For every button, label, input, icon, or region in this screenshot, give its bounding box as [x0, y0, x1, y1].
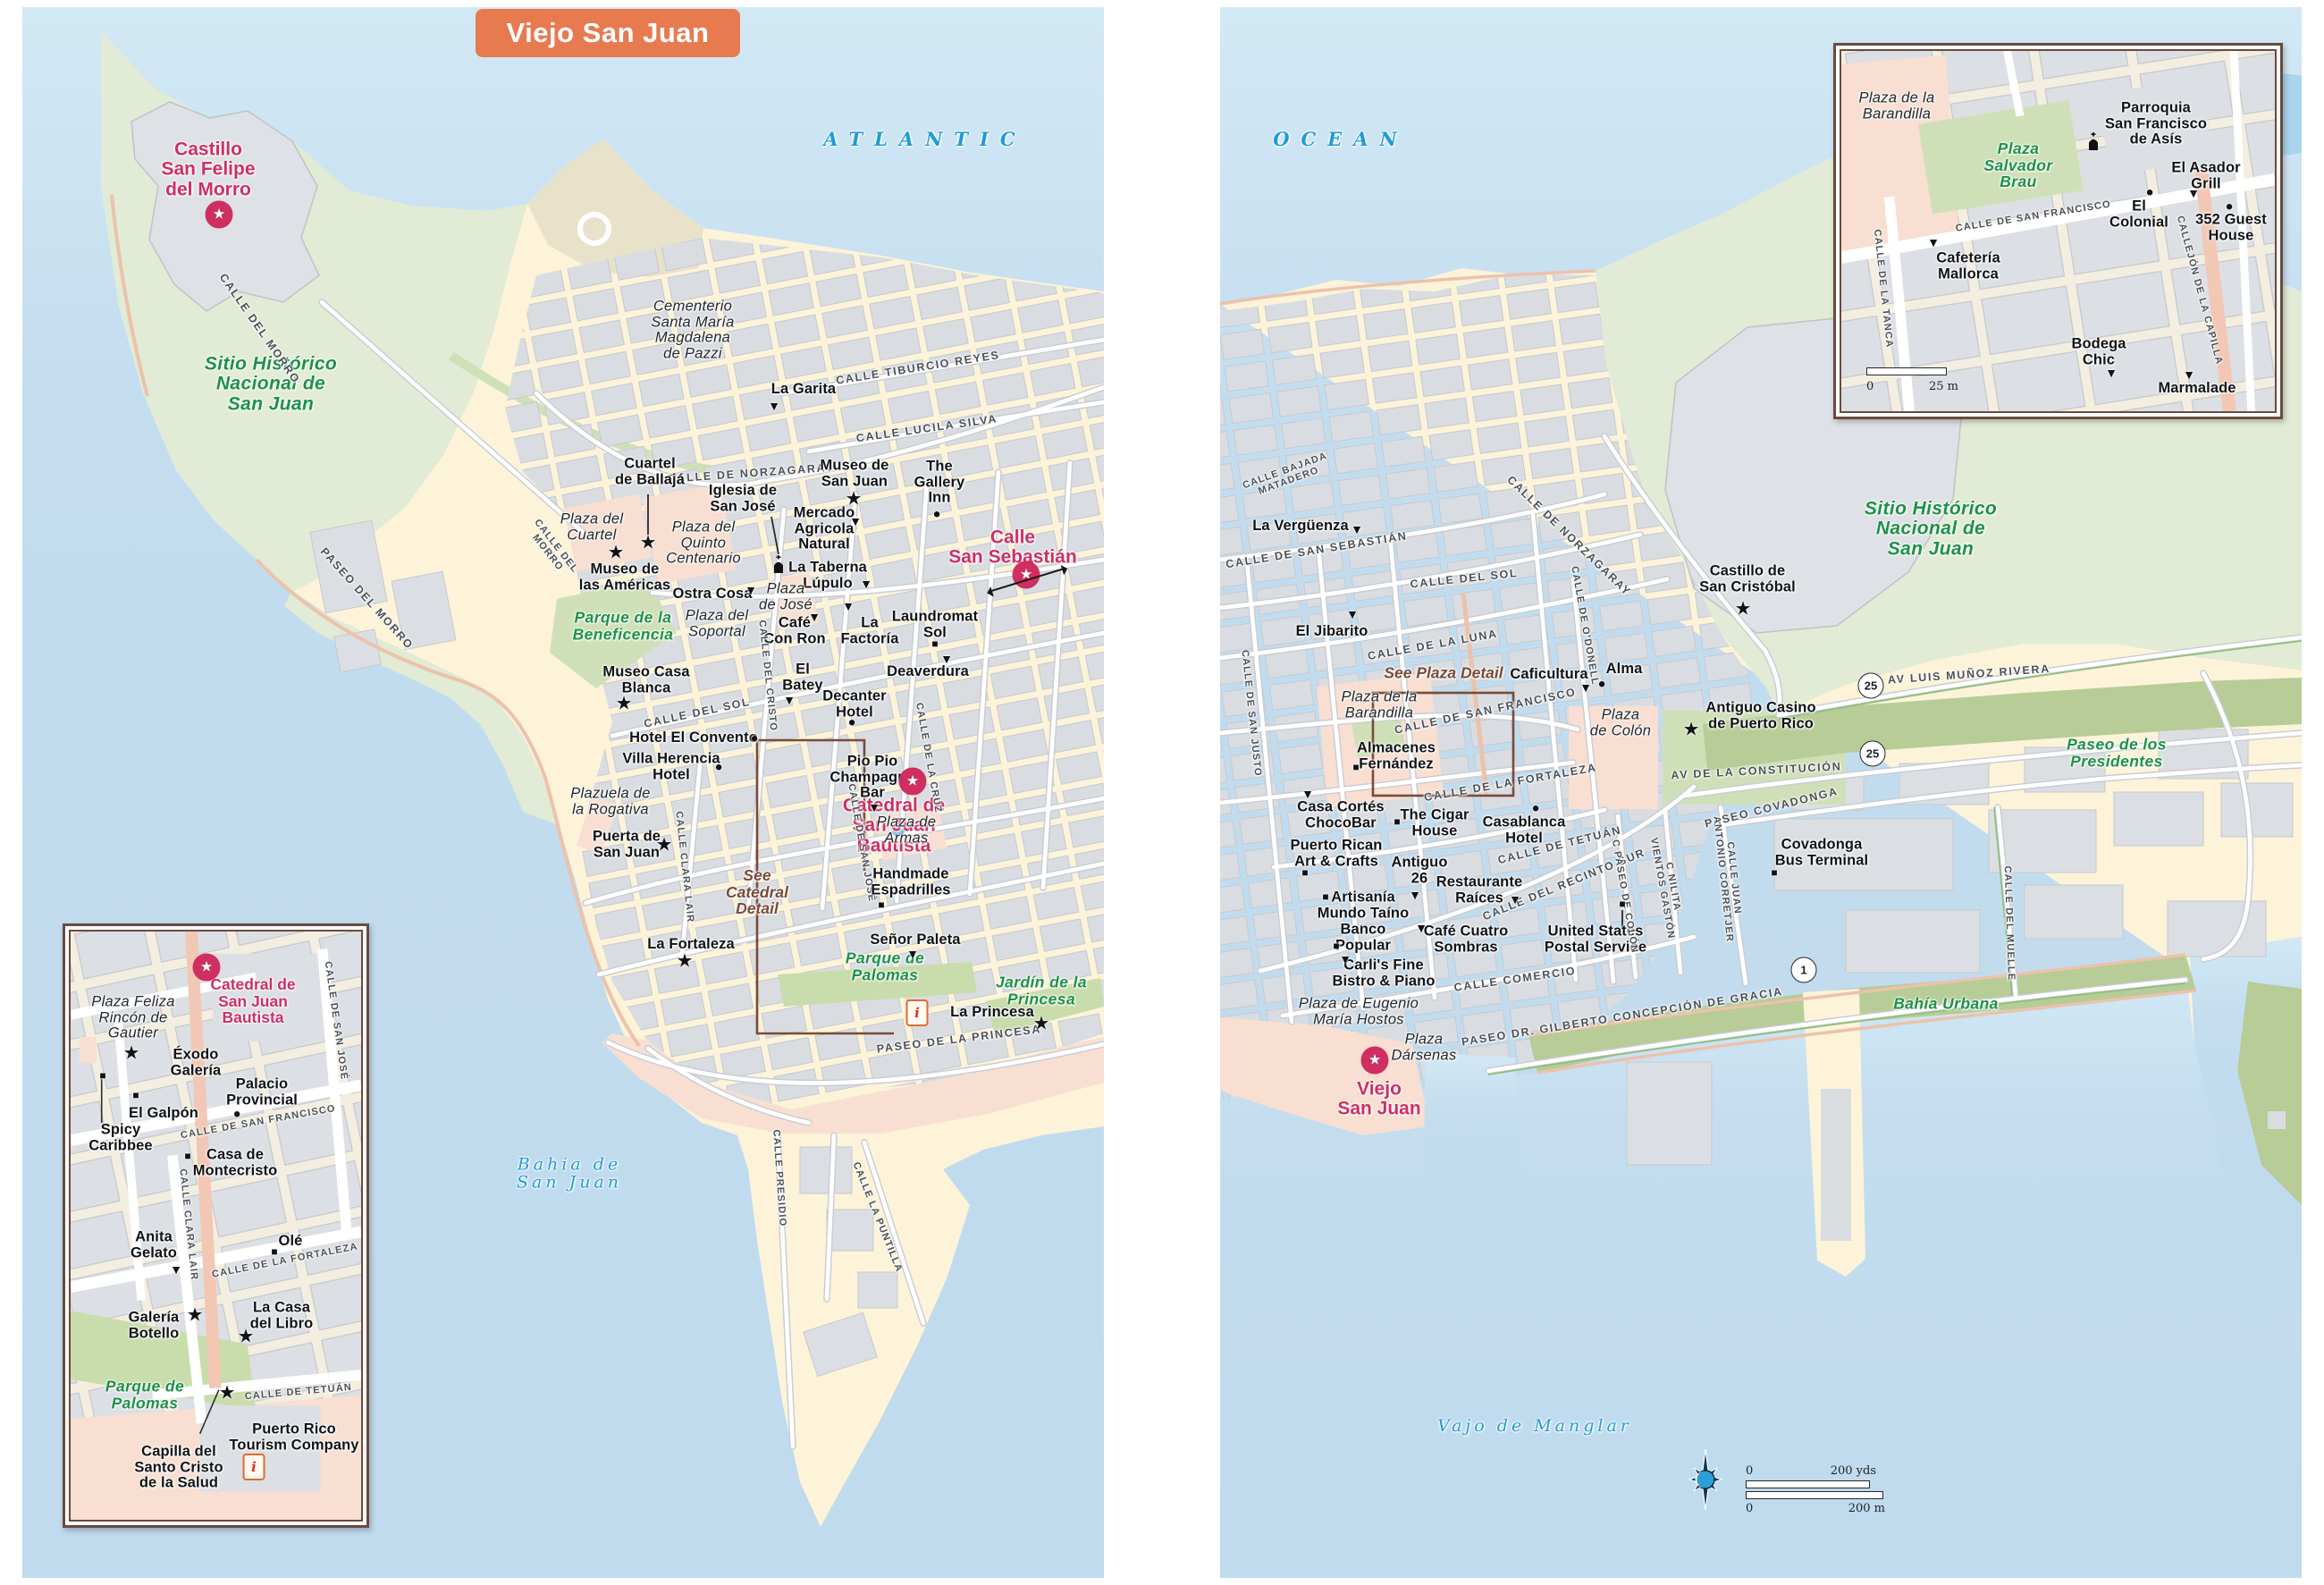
poi-square-icon: ■: [271, 1246, 277, 1257]
inset-catedral-detail: Plaza FelizaRincón deGautierCatedral deS…: [63, 923, 369, 1528]
poi-square-icon: ■: [99, 1070, 105, 1081]
inset-scale-zero: 0: [1866, 380, 1874, 393]
map-label-xodo-galer-a: ÉxodoGalería: [171, 1047, 222, 1078]
poi-dot-icon: ●: [2225, 200, 2233, 214]
poi-star-icon: ★: [123, 1044, 140, 1063]
map-label-av-luis-mu-oz-rivera: AV LUIS MUÑOZ RIVERA: [1888, 663, 2051, 687]
poi-square-icon: ■: [1301, 867, 1308, 878]
poi-square-icon: ■: [931, 638, 938, 649]
map-label-calle-del-muelle: CALLE DEL MUELLE: [2001, 865, 2016, 981]
scale-zero-top: 0: [1746, 1464, 1753, 1478]
poi-star-icon: ★: [219, 1384, 236, 1403]
poi-dot-icon: ●: [847, 716, 855, 729]
poi-triangle-icon: ▼: [768, 400, 780, 412]
poi-triangle-icon: ▼: [1346, 608, 1359, 620]
map-label-artisan-a-mundo-ta-no: ArtisaníaMundo Taíno: [1318, 889, 1410, 921]
poi-square-icon: ■: [1322, 891, 1328, 902]
scale-bar-yds: [1746, 1480, 1870, 1488]
map-label-calle-comercio: CALLE COMERCIO: [1453, 965, 1577, 994]
poi-triangle-icon: ▼: [842, 600, 855, 612]
map-label-calle-de-san-francisco: CALLE DE SAN FRANCISCO: [1955, 199, 2112, 234]
map-label-deaverdura: Deaverdura: [887, 664, 969, 680]
map-label-el-galp-n: El Galpón: [129, 1106, 198, 1122]
poi-triangle-icon: ▼: [1509, 893, 1521, 906]
map-label-calle-de-san-francisco: CALLE DE SAN FRANCISCO: [180, 1104, 336, 1142]
route-shield-25: 25: [1858, 673, 1884, 699]
map-label-calle-lucila-silva: CALLE LUCILA SILVA: [855, 413, 998, 444]
map-label-castillo-san-felipe-del-morro: CastilloSan Felipedel Morro: [161, 139, 255, 199]
poi-triangle-icon: ▼: [783, 694, 796, 706]
scale-m: 200 m: [1848, 1502, 1885, 1515]
poi-dot-icon: ●: [750, 732, 758, 746]
poi-dot-icon: ●: [1597, 678, 1605, 691]
map-label-sitio-hist-rico-nacional-de-san-ju: Sitio HistóricoNacional deSan Juan: [205, 354, 337, 414]
map-label-the-gallery-inn: TheGalleryInn: [914, 459, 965, 507]
map-label-calle-de-tetu-n: CALLE DE TETUÁN: [244, 1383, 352, 1403]
map-label-plaza-del-soportal: Plaza delSoportal: [686, 608, 749, 639]
map-label-museo-de-san-juan: Museo deSan Juan: [821, 458, 889, 489]
map-label-c-nilita-vientos-gast-n: C NILITAVIENTOS GASTÓN: [1647, 835, 1686, 940]
map-label-calle-de-san-sebasti-n: CALLE DE SAN SEBASTIÁN: [1225, 530, 1408, 570]
map-label-alma: Alma: [1606, 662, 1643, 678]
map-label-museo-de-las-am-ricas: Museo delas Américas: [579, 561, 670, 593]
map-label-bahia-de-san-juan: Bahia deSan Juan: [517, 1156, 622, 1193]
map-label-paseo-de-los-presidentes: Paseo de losPresidentes: [2067, 736, 2167, 769]
map-label-parroquia-san-francisco-de-as-s: ParroquiaSan Franciscode Asís: [2105, 101, 2207, 148]
map-label-calle-de-san-jos: CALLE DE SAN JOSÉ: [322, 961, 349, 1081]
poi-square-icon: ■: [878, 899, 884, 910]
poi-square-icon: ■: [1333, 940, 1339, 951]
map-label-calle-clara-lair: CALLE CLARA LAIR: [673, 811, 695, 923]
scale-zero-bottom: 0: [1746, 1502, 1753, 1515]
poi-star-icon: ★: [656, 836, 673, 855]
poi-triangle-icon: ▼: [860, 578, 872, 590]
map-label-ol: Olé: [279, 1234, 303, 1250]
map-label-la-factor-a: LaFactoría: [841, 615, 899, 646]
map-label-catedral-de-san-juan-bautista: Catedral deSan JuanBautista: [210, 976, 295, 1026]
map-label-sitio-hist-rico-nacional-de-san-ju: Sitio HistóricoNacional deSan Juan: [1865, 499, 1997, 559]
highlight-star-icon: ★: [206, 201, 233, 229]
church-icon: [2087, 132, 2101, 154]
map-label-la-verg-enza: La Vergüenza: [1252, 518, 1349, 535]
map-label-352-guest-house: 352 GuestHouse: [2195, 212, 2267, 243]
map-label-calle-tiburcio-reyes: CALLE TIBURCIO REYES: [835, 350, 1000, 387]
poi-square-icon: ■: [184, 1151, 190, 1161]
poi-triangle-icon: ▼: [808, 611, 821, 623]
map-label-castillo-de-san-crist-bal: Castillo deSan Cristóbal: [1699, 563, 1796, 594]
poi-star-icon: ★: [640, 534, 657, 552]
poi-star-icon: ★: [1033, 1015, 1050, 1033]
map-label-marmalade: Marmalade: [2158, 381, 2236, 397]
scale-yds: 200 yds: [1831, 1464, 1876, 1478]
map-label-plaza-de-eugenio-mar-a-hostos: Plaza de EugenioMaría Hostos: [1299, 996, 1419, 1027]
map-label-galer-a-botello: GaleríaBotello: [129, 1310, 180, 1341]
poi-dot-icon: ●: [232, 1108, 240, 1121]
poi-triangle-icon: ▼: [1351, 523, 1363, 535]
poi-triangle-icon: ▼: [745, 584, 757, 596]
map-label-antiguo-casino-de-puerto-rico: Antiguo Casinode Puerto Rico: [1705, 700, 1815, 731]
map-label-palacio-provincial: PalacioProvincial: [226, 1076, 298, 1108]
map-scale-bar: 0 200 yds 0 200 m: [1746, 1464, 1889, 1520]
scale-bar-m: [1746, 1491, 1883, 1499]
map-label-av-de-la-constituci-n: AV DE LA CONSTITUCIÓN: [1671, 761, 1842, 781]
poi-dot-icon: ●: [2145, 186, 2153, 199]
poi-dot-icon: ●: [932, 508, 940, 521]
map-label-calle-de-san-justo: CALLE DE SAN JUSTO: [1239, 650, 1263, 778]
map-label-iglesia-de-san-jos: Iglesia deSan José: [709, 483, 777, 514]
poi-dot-icon: ●: [714, 761, 722, 774]
map-label-calle-de-san-francisco: CALLE DE SAN FRANCISCO: [1394, 687, 1578, 737]
map-title-text: Viejo San Juan: [507, 17, 710, 49]
map-label-plaza-de-la-barandilla: Plaza de laBarandilla: [1859, 90, 1935, 122]
poi-triangle-icon: ▼: [2183, 368, 2195, 381]
poi-triangle-icon: ▼: [906, 948, 919, 960]
map-label-puerto-rico-tourism-company: Puerto RicoTourism Company: [229, 1421, 358, 1453]
map-label-mercado-agricola-natural: MercadoAgricolaNatural: [794, 506, 855, 553]
map-label-calle-san-sebasti-n: CalleSan Sebastián: [948, 528, 1077, 569]
church-icon: [772, 555, 786, 577]
map-label-el-colonial: ElColonial: [2109, 198, 2168, 230]
poi-star-icon: ★: [1683, 721, 1700, 739]
map-label-plazuela-de-la-rogativa: Plazuela dela Rogativa: [570, 786, 651, 817]
map-label-museo-casa-blanca: Museo CasaBlanca: [602, 664, 689, 696]
inset-scale-dist: 25 m: [1929, 380, 1958, 393]
map-label-hotel-el-convento: Hotel El Convento: [629, 730, 758, 746]
map-label-la-garita: La Garita: [771, 382, 836, 398]
poi-triangle-icon: ▼: [849, 515, 862, 527]
map-label-handmade-espadrilles: HandmadeEspadrilles: [871, 866, 950, 898]
map-label-la-casa-del-libro: La Casadel Libro: [250, 1300, 314, 1331]
map-label-calle-juan-antonio-corretjer: CALLE JUANANTONIO CORRETJER: [1711, 814, 1745, 943]
map-label-parque-de-la-beneficencia: Parque de laBeneficencia: [573, 609, 674, 642]
map-label-el-asador-grill: El AsadorGrill: [2171, 160, 2240, 191]
map-label-el-batey: ElBatey: [782, 662, 822, 693]
poi-triangle-icon: ▼: [1415, 922, 1427, 934]
tourist-info-icon: i: [906, 999, 929, 1026]
poi-triangle-icon: ▼: [868, 801, 880, 814]
map-label-calle-bajada-matadero: CALLE BAJADAMATADERO: [1242, 451, 1333, 502]
poi-star-icon: ★: [1735, 600, 1752, 619]
map-label-calle-la-puntilla: CALLE LA PUNTILLA: [850, 1161, 904, 1275]
map-label-paseo-de-la-princesa: PASEO DE LA PRINCESA: [876, 1024, 1042, 1056]
map-label-anita-gelato: AnitaGelato: [131, 1229, 177, 1260]
map-label-plaza-de-armas: Plaza deArmas: [877, 814, 937, 846]
map-label-see-plaza-detail: See Plaza Detail: [1384, 665, 1503, 682]
map-label-covadonga-bus-terminal: CovadongaBus Terminal: [1775, 837, 1869, 868]
map-label-calle-presidio: CALLE PRESIDIO: [770, 1129, 787, 1227]
map-label-calle-de-la-tanca: CALLE DE LA TANCA: [1871, 229, 1894, 349]
poi-star-icon: ★: [187, 1306, 204, 1325]
map-title: Viejo San Juan: [476, 9, 740, 57]
inset-scale-bar-line: [1866, 367, 1947, 375]
poi-star-icon: ★: [846, 490, 863, 509]
map-label-plaza-de-col-n: Plazade Colón: [1590, 707, 1651, 738]
highlight-star-icon: ★: [899, 768, 927, 796]
map-label-vajo-de-manglar: Vajo de Manglar: [1437, 1417, 1632, 1435]
map-label-calle-de-la-luna: CALLE DE LA LUNA: [1367, 628, 1499, 663]
poi-star-icon: ★: [238, 1328, 255, 1346]
poi-square-icon: ■: [1352, 762, 1359, 772]
poi-dot-icon: ●: [1531, 802, 1539, 815]
map-label-the-cigar-house: The CigarHouse: [1401, 807, 1469, 839]
map-label-calle-de-la-fortaleza: CALLE DE LA FORTALEZA: [1423, 762, 1597, 804]
map-label-casa-de-montecristo: Casa deMontecristo: [193, 1147, 278, 1178]
poi-square-icon: ■: [1394, 816, 1400, 827]
poi-triangle-icon: ▼: [2187, 187, 2200, 199]
map-label-jard-n-de-la-princesa: Jardín de laPrincesa: [996, 974, 1087, 1007]
map-label-plaza-del-quinto-centenario: Plaza delQuintoCentenario: [666, 520, 741, 568]
route-shield-25: 25: [1860, 741, 1886, 767]
map-label-calle-de-norzagaray: CALLE DE NORZAGARAY: [1504, 474, 1633, 598]
map-label-see-catedral-detail: SeeCatedralDetail: [726, 867, 788, 917]
map-label-caf-cuatro-sombras: Café CuatroSombras: [1424, 923, 1509, 955]
route-shield-1: 1: [1791, 957, 1817, 983]
map-label-plaza-del-cuartel: Plaza delCuartel: [560, 511, 624, 543]
map-label-plaza-de-la-barandilla: Plaza de laBarandilla: [1342, 689, 1418, 721]
poi-triangle-icon: ▼: [1927, 236, 1940, 249]
poi-triangle-icon: ▼: [1301, 788, 1314, 800]
map-label-bodega-chic: BodegaChic: [2071, 336, 2126, 367]
poi-triangle-icon: ▼: [2105, 367, 2118, 379]
map-label-parque-de-palomas: Parque dePalomas: [105, 1378, 184, 1411]
map-label-caficultura: Caficultura: [1510, 667, 1587, 683]
poi-star-icon: ★: [616, 695, 633, 713]
map-label-la-princesa: La Princesa: [950, 1005, 1034, 1021]
highlight-star-icon: ★: [1361, 1047, 1389, 1075]
map-label-viejo-san-juan: ViejoSan Juan: [1337, 1080, 1420, 1120]
map-label-el-jibarito: El Jibarito: [1296, 624, 1368, 640]
compass-rose-icon: [1685, 1448, 1726, 1515]
poi-triangle-icon: ▼: [1339, 953, 1351, 965]
map-label-casa-cort-s-chocobar: Casa CortésChocoBar: [1297, 799, 1384, 830]
map-label-laundromat-sol: LaundromatSol: [892, 609, 978, 640]
poi-star-icon: ★: [677, 952, 694, 971]
map-label-villa-herencia-hotel: Villa HerenciaHotel: [622, 751, 720, 782]
map-label-paseo-dr-gilberto-concepci-n-de-gr: PASEO DR. GILBERTO CONCEPCIÓN DE GRACIA: [1461, 986, 1783, 1049]
map-label-ocean: OCEAN: [1273, 130, 1409, 149]
map-label-puerto-rican-art-crafts: Puerto RicanArt & Crafts: [1291, 838, 1383, 869]
poi-star-icon: ★: [608, 544, 625, 562]
map-label-calle-del-sol: CALLE DEL SOL: [1410, 568, 1519, 591]
inset-scale-bar: 0 25 m: [1866, 362, 1974, 403]
map-label-plaza-d-rsenas: PlazaDársenas: [1391, 1032, 1456, 1063]
highlight-star-icon: ★: [193, 954, 221, 982]
map-label-puerta-de-san-juan: Puerta deSan Juan: [593, 829, 661, 860]
old-san-juan-map: ATLANTICBahia deSan JuanCastilloSan Feli…: [0, 0, 2324, 1585]
map-label-cafeter-a-mallorca: CafeteríaMallorca: [1936, 250, 2000, 282]
map-label-ostra-cosa: Ostra Cosa: [672, 586, 752, 603]
map-label-bah-a-urbana: Bahía Urbana: [1893, 996, 1999, 1013]
map-label-atlantic: ATLANTIC: [823, 130, 1026, 149]
poi-triangle-icon: ▼: [1409, 889, 1421, 901]
map-label-plaza-feliza-rinc-n-de-gautier: Plaza FelizaRincón deGautier: [91, 995, 174, 1042]
map-label-calle-del-sol: CALLE DEL SOL: [643, 696, 751, 730]
map-label-cuartel-de-ballaj: Cuartelde Ballajá: [615, 456, 685, 487]
poi-triangle-icon: ▼: [1579, 681, 1592, 694]
tourist-info-icon: i: [243, 1454, 265, 1480]
map-label-banco-popular: BancoPopular: [1335, 922, 1391, 953]
poi-square-icon: ■: [1771, 867, 1777, 878]
map-label-almacenes-fern-ndez: AlmacenesFernández: [1357, 740, 1436, 771]
map-label-spicy-caribbee: SpicyCaribbee: [88, 1122, 152, 1153]
map-label-cementerio-santa-mar-a-magdalena-d: CementerioSanta MaríaMagdalenade Pazzi: [651, 299, 734, 363]
map-label-capilla-del-santo-cristo-de-la-sal: Capilla delSanto Cristode la Salud: [134, 1445, 223, 1492]
inset-plaza-detail: Plaza de laBarandillaPlazaSalvadorBrauPa…: [1833, 43, 2283, 419]
poi-square-icon: ■: [1619, 898, 1625, 909]
map-label-paseo-del-morro: PASEO DEL MORRO: [318, 546, 416, 653]
poi-square-icon: ■: [132, 1090, 139, 1100]
map-label-plaza-salvador-brau: PlazaSalvadorBrau: [1983, 140, 2052, 190]
poi-triangle-icon: ▼: [940, 653, 953, 665]
map-label-plaza-de-jos: Plazade José: [759, 581, 813, 612]
poi-triangle-icon: ▼: [170, 1263, 182, 1276]
